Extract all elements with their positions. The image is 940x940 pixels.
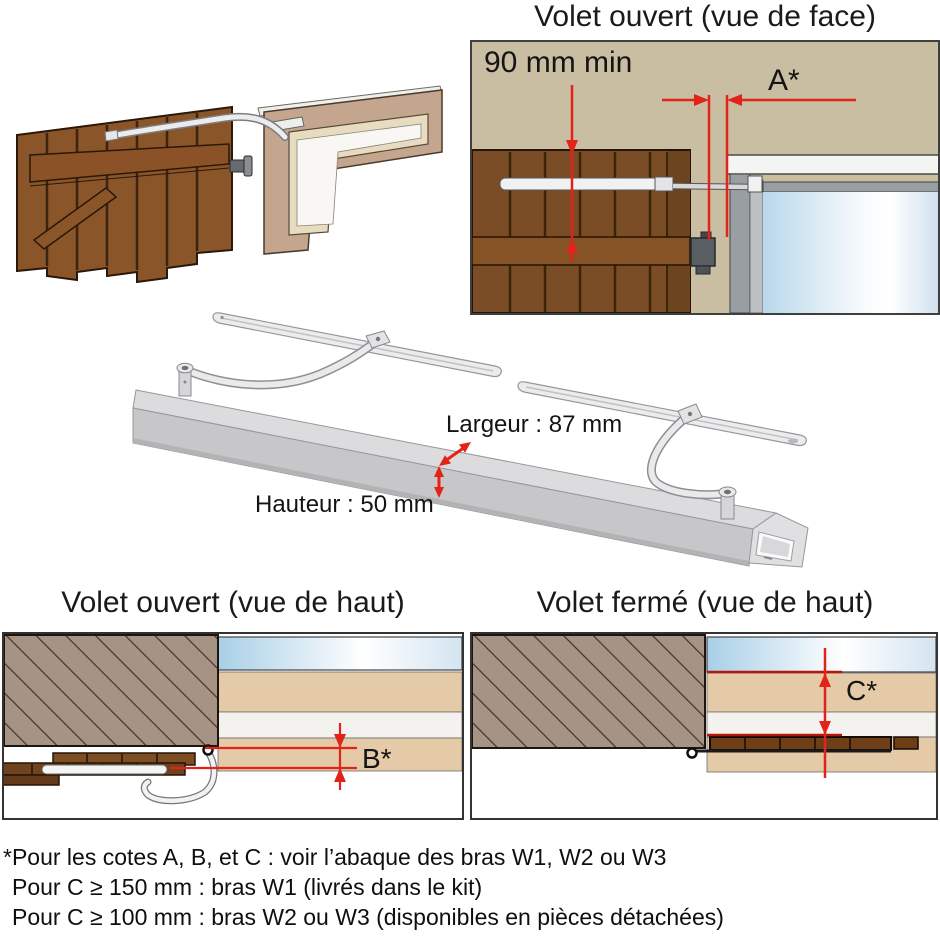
window-glass bbox=[763, 192, 940, 313]
hinge-pin-3d bbox=[230, 156, 252, 176]
dim-a-label: A* bbox=[768, 66, 800, 96]
front-view-title: Volet ouvert (vue de face) bbox=[470, 0, 940, 34]
footnote-abaque: *Pour les cotes A, B, et C : voir l’abaq… bbox=[3, 842, 724, 872]
top-view-closed-panel: C* bbox=[470, 632, 938, 820]
window-frame-corner-3d bbox=[258, 86, 442, 254]
dim-c-label: C* bbox=[846, 676, 877, 706]
hatched-wall-section bbox=[472, 635, 705, 748]
hatched-wall-section bbox=[4, 635, 218, 746]
hinge-axis-dot bbox=[204, 746, 213, 755]
technical-diagram-page: Volet ouvert (vue de face) bbox=[0, 0, 940, 940]
hinge-axis-dot bbox=[688, 749, 697, 758]
front-view-shutter bbox=[472, 150, 690, 313]
front-view-panel: 90 mm min A* bbox=[470, 40, 940, 315]
dim-90mm-label: 90 mm min bbox=[484, 48, 632, 78]
pivot-post-2 bbox=[719, 487, 736, 519]
bar-height-label: Hauteur : 50 mm bbox=[255, 492, 434, 518]
footnotes: *Pour les cotes A, B, et C : voir l’abaq… bbox=[3, 842, 724, 932]
footnote-bras-w1: Pour C ≥ 150 mm : bras W1 (livrés dans l… bbox=[3, 872, 724, 902]
closed-shutter-planks bbox=[692, 737, 918, 751]
bar-width-label: Largeur : 87 mm bbox=[446, 412, 622, 438]
actuator-bar-3d-illustration: Largeur : 87 mm Hauteur : 50 mm bbox=[100, 300, 840, 585]
curved-arm-1 bbox=[186, 331, 390, 385]
top-view-open-title: Volet ouvert (vue de haut) bbox=[0, 586, 466, 620]
arm-blade-1 bbox=[213, 313, 501, 377]
top-view-open-panel: B* bbox=[2, 632, 464, 820]
shutter-arm-3d-illustration bbox=[2, 60, 460, 320]
footnote-bras-w2-w3: Pour C ≥ 100 mm : bras W2 ou W3 (disponi… bbox=[3, 902, 724, 932]
top-view-closed-title: Volet fermé (vue de haut) bbox=[470, 586, 940, 620]
pivot-post-1 bbox=[177, 363, 193, 396]
dim-b-label: B* bbox=[362, 744, 392, 774]
